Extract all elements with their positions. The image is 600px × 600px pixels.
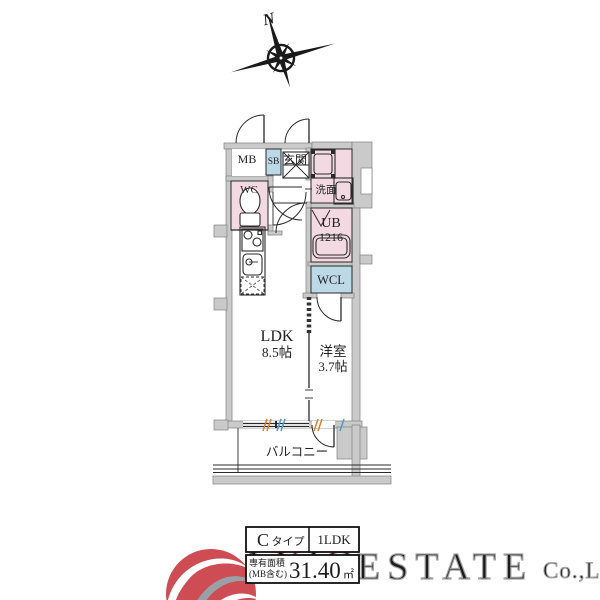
area-label-1: 専有面積 [249,557,285,568]
north-label: N [260,10,278,30]
watermark-estate: ESTATE [357,546,533,588]
room-partition [305,297,313,421]
label-senmen: 洗面 [316,184,337,196]
label-wcl: WCL [317,273,345,287]
label-ldk-size: 8.5帖 [262,345,292,360]
kitchen-sink-icon [243,254,262,275]
mb-door [236,115,264,143]
area-unit: ㎡ [343,568,354,581]
label-ldk: LDK [261,328,294,345]
layout-value: 1LDK [317,532,351,547]
label-sb: SB [268,157,280,167]
area-label-2: (MB含む) [249,568,287,579]
type-main: C [257,530,269,550]
label-genkan: 玄関 [283,152,307,167]
label-mb: MB [238,152,257,166]
floorplan-canvas: N [0,0,600,600]
floor-plan: MB SB 玄関 WC 洗面 UB 1216 WCL LDK 8.5帖 洋室 3… [213,115,391,484]
western-room-door [317,297,341,321]
label-ub-size: 1216 [319,230,343,244]
stove-icon [242,229,263,251]
kitchen-unit [240,227,265,295]
area-value: 31.40 [289,558,341,583]
label-western: 洋室 [320,343,347,359]
label-western-size: 3.7帖 [318,359,347,374]
label-balcony: バルコニー [266,445,328,459]
compass-rose: N [218,0,344,103]
label-ub: UB [321,216,340,231]
info-table: C タイプ 1LDK 専有面積 (MB含む) 31.40 ㎡ [246,527,359,583]
type-sub: タイプ [272,535,305,548]
label-wc: WC [240,184,258,196]
watermark-coltd: Co.,Ltd [543,558,600,583]
entrance-door [285,119,309,143]
floorplan-page: N [0,0,600,600]
refrigerator-space-icon [241,277,264,294]
north-needle [218,0,344,103]
